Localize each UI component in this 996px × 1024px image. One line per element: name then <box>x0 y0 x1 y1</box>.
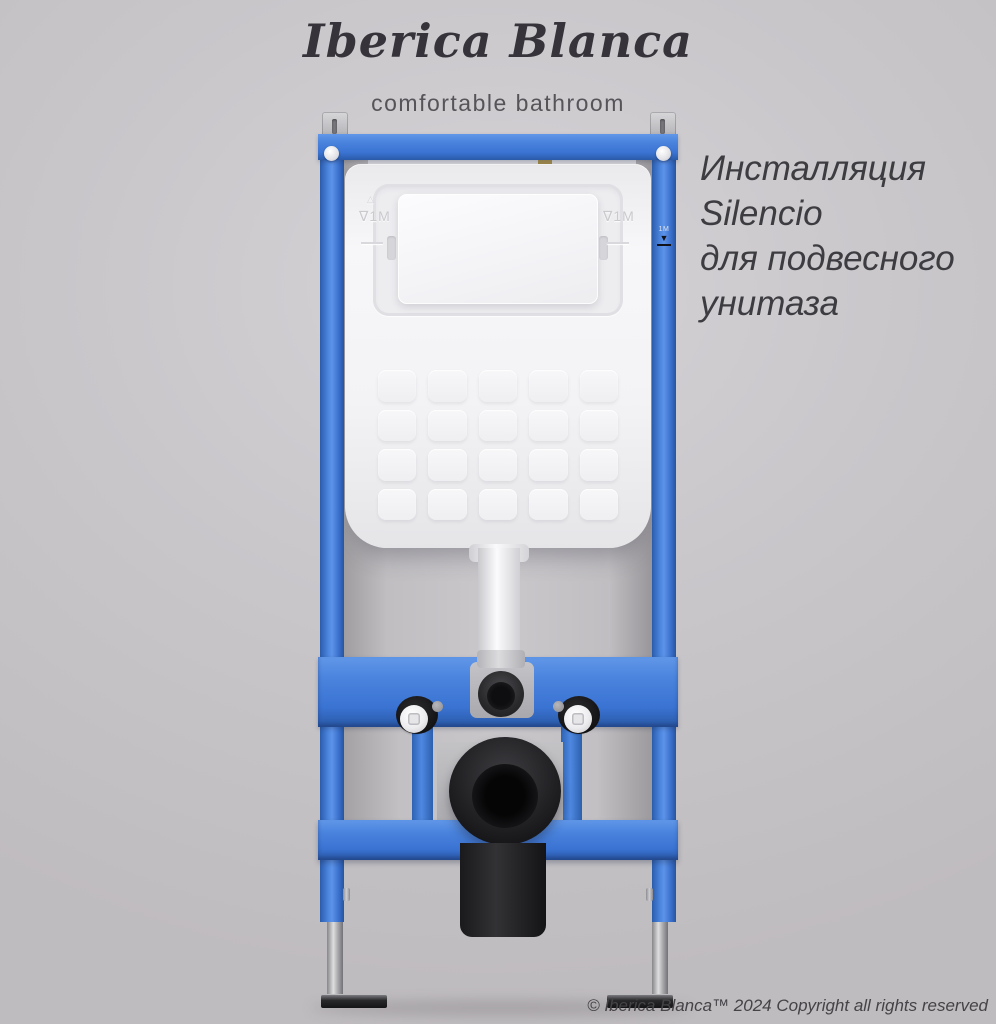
pilot-hole-left <box>432 701 443 712</box>
texture-cell <box>529 489 567 521</box>
fixing-bolt-nut <box>408 713 420 725</box>
product-title-line: Silencio <box>700 191 996 236</box>
level-line <box>657 244 671 246</box>
texture-cell <box>428 410 466 442</box>
level-marking-left: ∇1M <box>359 208 391 225</box>
flush-elbow-hole <box>487 682 515 710</box>
texture-cell <box>580 489 618 521</box>
rail-level-marking: 1M ▼ <box>655 226 673 246</box>
texture-cell <box>479 449 517 481</box>
brand-tagline: comfortable bathroom <box>0 90 996 117</box>
copyright-text: © Iberica Blanca™ 2024 Copyright all rig… <box>587 996 988 1016</box>
foot-rod-left <box>327 916 343 1000</box>
texture-cell <box>580 370 618 402</box>
texture-cell <box>529 370 567 402</box>
frame-rail-left <box>320 134 344 922</box>
texture-cell <box>479 410 517 442</box>
drain-elbow-hole <box>472 764 538 828</box>
product-title-line: унитаза <box>700 281 996 326</box>
elbow-collar <box>477 650 525 668</box>
level-triangle-marking: △ <box>367 194 374 205</box>
texture-cell <box>428 370 466 402</box>
texture-cell <box>580 449 618 481</box>
drain-outlet-pipe <box>460 843 546 937</box>
texture-cell <box>428 449 466 481</box>
texture-cell <box>479 489 517 521</box>
texture-cell <box>529 410 567 442</box>
cistern-texture-grid <box>378 370 618 520</box>
level-marking-right: ∇1M <box>603 208 635 225</box>
fixing-bolt-cap-left <box>400 705 428 733</box>
level-arrow-icon: ▼ <box>655 234 673 243</box>
frame-top-bar <box>318 134 678 160</box>
leg-adjust-screw-left <box>343 888 350 901</box>
pilot-hole-right <box>553 701 564 712</box>
plate-clip-right <box>599 236 608 260</box>
texture-cell <box>378 449 416 481</box>
support-strut-left <box>412 727 433 822</box>
bracket-slot <box>332 119 337 134</box>
rail-bolt-left <box>324 146 339 161</box>
product-title: Инсталляция Silencio для подвесного унит… <box>700 146 996 326</box>
product-title-line: для подвесного <box>700 236 996 281</box>
texture-cell <box>378 370 416 402</box>
texture-cell <box>378 489 416 521</box>
product-poster: { "header": { "brand": "Iberica Blanca",… <box>0 0 996 1024</box>
texture-cell <box>378 410 416 442</box>
texture-cell <box>479 370 517 402</box>
texture-cell <box>428 489 466 521</box>
texture-cell <box>580 410 618 442</box>
support-strut-right <box>561 727 582 822</box>
brand-logo: Iberica Blanca <box>0 14 996 68</box>
foot-plate-left <box>321 994 387 1008</box>
fixing-bolt-cap-right <box>564 705 592 733</box>
flush-plate <box>398 194 598 304</box>
rail-bolt-right <box>656 146 671 161</box>
flush-pipe <box>478 548 520 664</box>
plate-clip-left <box>387 236 396 260</box>
bracket-slot <box>660 119 665 134</box>
leg-adjust-screw-right <box>646 888 653 901</box>
level-dash-left <box>361 242 383 244</box>
cistern-tank: △ ∇1M ∇1M <box>345 164 651 548</box>
frame-rail-right <box>652 134 676 922</box>
product-title-line: Инсталляция <box>700 146 996 191</box>
foot-rod-right <box>652 916 668 1000</box>
fixing-bolt-nut <box>572 713 584 725</box>
level-dash-right <box>607 242 629 244</box>
texture-cell <box>529 449 567 481</box>
